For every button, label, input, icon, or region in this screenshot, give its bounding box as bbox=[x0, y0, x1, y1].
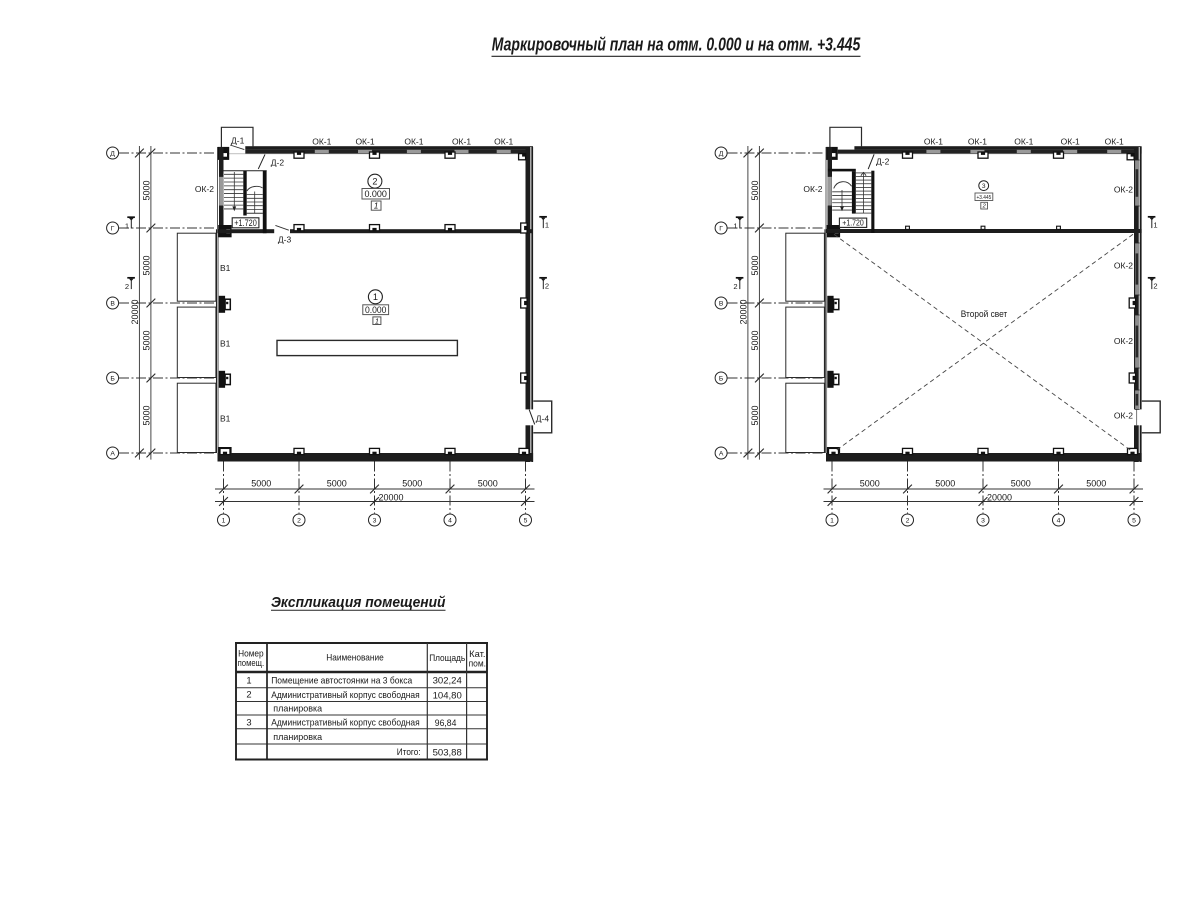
svg-text:20000: 20000 bbox=[739, 299, 749, 324]
svg-text:ОК-2: ОК-2 bbox=[1114, 336, 1133, 346]
svg-text:20000: 20000 bbox=[987, 492, 1012, 502]
svg-text:Б: Б bbox=[719, 375, 724, 382]
svg-text:0.000: 0.000 bbox=[364, 189, 387, 199]
svg-text:Д-1: Д-1 bbox=[231, 136, 245, 146]
svg-text:5000: 5000 bbox=[142, 330, 152, 350]
svg-text:1: 1 bbox=[125, 221, 129, 230]
svg-text:Д: Д bbox=[719, 150, 724, 157]
svg-text:Г: Г bbox=[111, 225, 115, 232]
svg-text:5000: 5000 bbox=[750, 180, 760, 200]
svg-text:1: 1 bbox=[222, 517, 226, 524]
svg-text:Б: Б bbox=[110, 375, 115, 382]
svg-text:ОК-1: ОК-1 bbox=[312, 137, 331, 147]
svg-text:96,84: 96,84 bbox=[435, 717, 457, 728]
svg-text:+1.720: +1.720 bbox=[842, 218, 864, 228]
svg-text:5000: 5000 bbox=[142, 255, 152, 275]
svg-text:В1: В1 bbox=[220, 339, 231, 349]
svg-text:1: 1 bbox=[545, 221, 549, 230]
svg-text:Маркировочный план на отм. 0.0: Маркировочный план на отм. 0.000 и на от… bbox=[492, 34, 861, 55]
svg-text:20000: 20000 bbox=[379, 492, 404, 502]
svg-text:ОК-1: ОК-1 bbox=[452, 137, 471, 147]
svg-text:5000: 5000 bbox=[251, 478, 271, 488]
svg-text:1: 1 bbox=[374, 201, 379, 211]
svg-text:1: 1 bbox=[733, 221, 737, 230]
svg-text:1: 1 bbox=[375, 316, 379, 325]
svg-text:Административный корпус свобод: Административный корпус свободная bbox=[271, 716, 420, 727]
svg-text:3: 3 bbox=[982, 183, 986, 190]
svg-text:Д-4: Д-4 bbox=[536, 414, 550, 424]
svg-text:ОК-1: ОК-1 bbox=[924, 137, 943, 147]
svg-text:Площадь: Площадь bbox=[429, 652, 465, 663]
svg-text:2: 2 bbox=[246, 689, 251, 700]
svg-text:5000: 5000 bbox=[1086, 478, 1106, 488]
svg-text:Административный корпус свобод: Административный корпус свободная bbox=[271, 689, 420, 700]
svg-text:ОК-1: ОК-1 bbox=[355, 137, 374, 147]
svg-text:3: 3 bbox=[246, 716, 251, 727]
svg-text:5: 5 bbox=[524, 517, 528, 524]
svg-text:3: 3 bbox=[373, 517, 377, 524]
svg-text:20000: 20000 bbox=[130, 299, 140, 324]
svg-text:ОК-2: ОК-2 bbox=[1114, 411, 1133, 421]
svg-text:А: А bbox=[110, 450, 115, 457]
svg-text:А: А bbox=[719, 450, 724, 457]
svg-text:2: 2 bbox=[906, 517, 910, 524]
svg-text:5000: 5000 bbox=[750, 405, 760, 425]
svg-text:+3.445: +3.445 bbox=[977, 195, 992, 201]
svg-text:5000: 5000 bbox=[402, 478, 422, 488]
svg-text:Д-2: Д-2 bbox=[876, 157, 890, 167]
svg-text:5000: 5000 bbox=[860, 478, 880, 488]
svg-text:1: 1 bbox=[830, 517, 834, 524]
svg-text:503,88: 503,88 bbox=[433, 746, 462, 757]
svg-text:Помещение автостоянки на 3 бок: Помещение автостоянки на 3 бокса bbox=[271, 674, 413, 685]
svg-text:302,24: 302,24 bbox=[433, 675, 462, 686]
svg-text:ОК-1: ОК-1 bbox=[1061, 137, 1080, 147]
svg-text:5000: 5000 bbox=[142, 405, 152, 425]
svg-text:0.000: 0.000 bbox=[365, 305, 387, 315]
svg-text:ОК-2: ОК-2 bbox=[1114, 184, 1133, 194]
svg-text:4: 4 bbox=[1057, 517, 1061, 524]
svg-text:5000: 5000 bbox=[142, 180, 152, 200]
svg-text:В1: В1 bbox=[220, 263, 231, 273]
svg-text:2: 2 bbox=[1153, 282, 1157, 291]
svg-text:помещ.: помещ. bbox=[238, 657, 265, 668]
svg-text:Наименование: Наименование bbox=[326, 651, 384, 662]
svg-text:пом.: пом. bbox=[469, 658, 486, 669]
svg-text:104,80: 104,80 bbox=[433, 690, 462, 701]
svg-text:5000: 5000 bbox=[750, 330, 760, 350]
svg-text:Экспликация помещений: Экспликация помещений bbox=[271, 595, 446, 611]
svg-text:2: 2 bbox=[733, 282, 737, 291]
svg-text:ОК-2: ОК-2 bbox=[1114, 261, 1133, 271]
svg-text:В: В bbox=[110, 300, 115, 307]
svg-text:2: 2 bbox=[125, 282, 129, 291]
svg-text:5000: 5000 bbox=[478, 478, 498, 488]
svg-text:5000: 5000 bbox=[750, 255, 760, 275]
svg-text:ОК-1: ОК-1 bbox=[1105, 137, 1124, 147]
svg-text:1: 1 bbox=[246, 674, 251, 685]
svg-text:2: 2 bbox=[297, 517, 301, 524]
svg-text:1: 1 bbox=[373, 292, 378, 302]
svg-text:Итого:: Итого: bbox=[397, 746, 421, 757]
svg-text:ОК-1: ОК-1 bbox=[1014, 137, 1033, 147]
svg-text:ОК-2: ОК-2 bbox=[803, 184, 822, 194]
svg-text:планировка: планировка bbox=[273, 731, 323, 742]
svg-text:2: 2 bbox=[545, 282, 549, 291]
svg-text:В1: В1 bbox=[220, 414, 231, 424]
svg-text:3: 3 bbox=[981, 517, 985, 524]
svg-text:планировка: планировка bbox=[273, 703, 323, 714]
svg-text:ОК-1: ОК-1 bbox=[404, 137, 423, 147]
svg-text:5000: 5000 bbox=[935, 478, 955, 488]
svg-text:Второй свет: Второй свет bbox=[961, 309, 1008, 320]
svg-text:2: 2 bbox=[372, 177, 377, 187]
svg-text:Д-2: Д-2 bbox=[271, 157, 285, 167]
svg-text:+1.720: +1.720 bbox=[234, 218, 257, 228]
svg-text:4: 4 bbox=[448, 517, 452, 524]
svg-text:5: 5 bbox=[1132, 517, 1136, 524]
svg-text:ОК-1: ОК-1 bbox=[494, 137, 513, 147]
svg-text:5000: 5000 bbox=[327, 478, 347, 488]
svg-text:В: В bbox=[719, 300, 724, 307]
svg-text:1: 1 bbox=[1153, 221, 1157, 230]
svg-text:ОК-2: ОК-2 bbox=[195, 184, 214, 194]
svg-text:Г: Г bbox=[719, 225, 723, 232]
svg-text:Д: Д bbox=[110, 150, 115, 157]
svg-text:Д-3: Д-3 bbox=[278, 234, 292, 244]
svg-text:ОК-1: ОК-1 bbox=[968, 137, 987, 147]
svg-text:5000: 5000 bbox=[1011, 478, 1031, 488]
